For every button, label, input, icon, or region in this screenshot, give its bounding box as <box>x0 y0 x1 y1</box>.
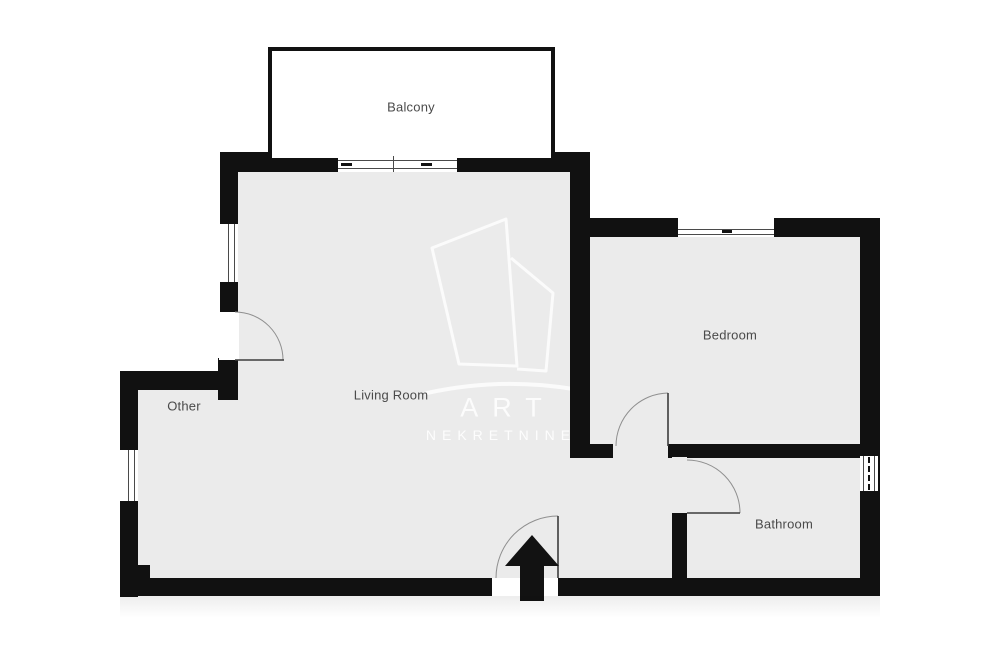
bedroom-window <box>676 218 776 237</box>
wall-living-right <box>570 152 590 458</box>
watermark-brand: ART <box>460 393 556 424</box>
bathroom-label: Bathroom <box>755 517 813 532</box>
watermark-subtitle: NEKRETNINE <box>426 427 576 443</box>
living-room-floor <box>238 172 572 578</box>
balcony-sliding-door-window <box>338 156 457 172</box>
other-floor <box>136 390 240 580</box>
bedroom-label: Bedroom <box>703 328 757 343</box>
side-door-opening <box>219 312 239 360</box>
bedroom-door-opening <box>613 444 668 458</box>
bathroom-door-opening <box>672 457 687 513</box>
other-label: Other <box>167 399 201 414</box>
hallway-floor <box>558 458 674 578</box>
living-room-label: Living Room <box>354 388 428 403</box>
living-room-left-window <box>220 222 238 284</box>
bathroom-right-window <box>860 456 878 491</box>
other-left-window <box>120 448 138 503</box>
floor-plan: ART NEKRETNINE <box>0 0 1000 667</box>
wall-bathroom-left <box>672 513 687 596</box>
balcony-label: Balcony <box>387 100 435 115</box>
wall-right <box>860 218 880 596</box>
plan-shadow <box>120 596 880 618</box>
entrance-opening <box>492 578 558 596</box>
